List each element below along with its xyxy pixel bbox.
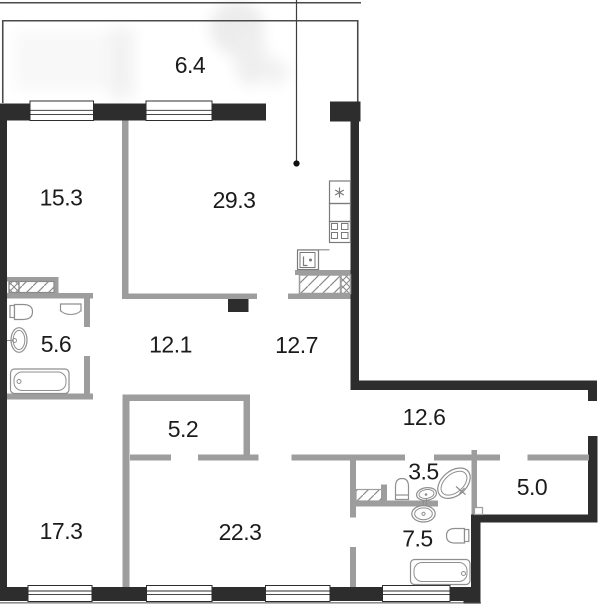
svg-text:12.1: 12.1 <box>149 332 192 358</box>
svg-text:3.5: 3.5 <box>408 459 438 485</box>
svg-text:17.3: 17.3 <box>40 518 83 544</box>
svg-text:15.3: 15.3 <box>40 185 83 211</box>
svg-text:7.5: 7.5 <box>402 526 432 552</box>
svg-text:12.7: 12.7 <box>275 332 318 358</box>
svg-text:12.6: 12.6 <box>403 404 446 430</box>
svg-text:5.6: 5.6 <box>41 331 71 357</box>
svg-text:5.0: 5.0 <box>517 474 547 500</box>
svg-text:22.3: 22.3 <box>219 519 262 545</box>
svg-text:29.3: 29.3 <box>213 187 256 213</box>
svg-text:5.2: 5.2 <box>168 416 198 442</box>
svg-text:6.4: 6.4 <box>175 52 206 78</box>
